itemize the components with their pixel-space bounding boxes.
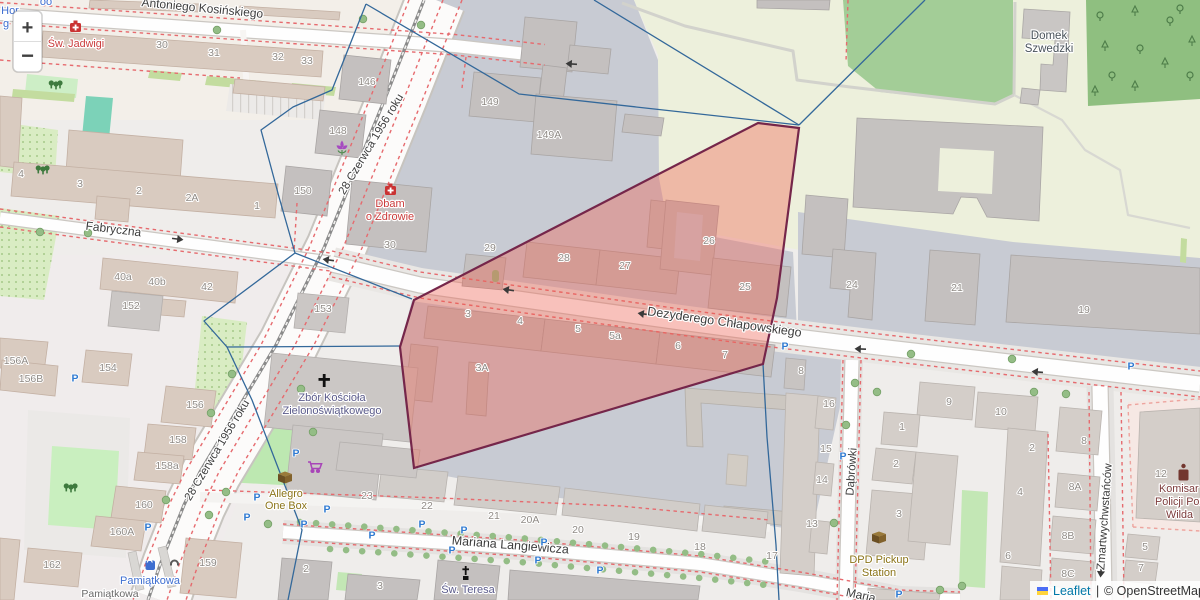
svg-text:P: P xyxy=(300,519,307,531)
svg-text:7: 7 xyxy=(722,349,728,361)
svg-text:P: P xyxy=(534,555,541,567)
svg-text:20: 20 xyxy=(572,524,584,536)
svg-text:Pamiątkowa: Pamiątkowa xyxy=(120,575,181,587)
svg-text:158: 158 xyxy=(169,434,187,446)
svg-text:16: 16 xyxy=(823,398,835,410)
svg-text:8A: 8A xyxy=(1069,481,1082,493)
svg-text:Zbór Kościoła: Zbór Kościoła xyxy=(298,392,366,404)
svg-text:19: 19 xyxy=(628,531,640,543)
svg-text:162: 162 xyxy=(43,559,61,571)
svg-text:20A: 20A xyxy=(521,514,540,526)
svg-text:2: 2 xyxy=(303,563,309,575)
svg-text:P: P xyxy=(895,589,902,600)
svg-text:Zielonoświątkowego: Zielonoświątkowego xyxy=(282,405,381,417)
svg-text:30: 30 xyxy=(156,39,168,51)
svg-text:30: 30 xyxy=(384,239,396,251)
svg-text:© OpenStreetMap: © OpenStreetMap xyxy=(1104,584,1200,598)
svg-text:2A: 2A xyxy=(186,192,199,204)
svg-text:Pamiątkowa: Pamiątkowa xyxy=(81,588,138,600)
svg-text:160A: 160A xyxy=(110,526,135,538)
svg-text:P: P xyxy=(253,492,260,504)
svg-text:2: 2 xyxy=(893,458,899,470)
svg-text:13: 13 xyxy=(806,518,818,530)
svg-text:4: 4 xyxy=(18,168,24,180)
svg-text:−: − xyxy=(21,43,34,68)
svg-text:Szwedzki: Szwedzki xyxy=(1025,43,1074,55)
svg-text:156A: 156A xyxy=(4,355,29,367)
svg-text:10: 10 xyxy=(995,406,1007,418)
svg-text:1: 1 xyxy=(899,421,905,433)
svg-text:4: 4 xyxy=(517,315,523,327)
svg-text:29: 29 xyxy=(484,242,496,254)
svg-text:33: 33 xyxy=(301,55,313,67)
svg-text:154: 154 xyxy=(99,362,117,374)
svg-text:19: 19 xyxy=(1078,304,1090,316)
svg-text:27: 27 xyxy=(619,260,631,272)
svg-text:3A: 3A xyxy=(476,362,489,374)
svg-text:1: 1 xyxy=(254,200,260,212)
svg-text:P: P xyxy=(323,504,330,516)
svg-text:146: 146 xyxy=(358,76,376,88)
svg-text:150: 150 xyxy=(294,185,312,197)
svg-text:8: 8 xyxy=(1081,435,1087,447)
svg-text:5: 5 xyxy=(575,323,581,335)
svg-text:3: 3 xyxy=(896,508,902,520)
svg-text:P: P xyxy=(71,373,78,385)
svg-text:32: 32 xyxy=(272,51,284,63)
svg-text:3: 3 xyxy=(465,308,471,320)
svg-text:P: P xyxy=(460,525,467,537)
svg-text:P: P xyxy=(540,537,547,549)
svg-text:22: 22 xyxy=(421,500,433,512)
svg-text:Św. Jadwigi: Św. Jadwigi xyxy=(48,37,104,50)
svg-text:40b: 40b xyxy=(148,276,166,288)
svg-text:P: P xyxy=(596,565,603,577)
svg-text:P: P xyxy=(448,545,455,557)
svg-text:Domek: Domek xyxy=(1031,30,1068,42)
svg-text:P: P xyxy=(839,451,846,463)
svg-text:o Zdrowie: o Zdrowie xyxy=(366,211,414,223)
svg-text:40a: 40a xyxy=(114,271,132,283)
svg-text:5: 5 xyxy=(1142,541,1148,553)
svg-text:25: 25 xyxy=(739,281,751,293)
svg-text:Leaflet: Leaflet xyxy=(1053,584,1091,598)
svg-text:24: 24 xyxy=(846,279,858,291)
svg-text:Allegro: Allegro xyxy=(269,488,303,500)
svg-text:156B: 156B xyxy=(19,373,44,385)
svg-text:7: 7 xyxy=(1138,562,1144,574)
svg-text:156: 156 xyxy=(186,399,204,411)
svg-text:Św. Teresa: Św. Teresa xyxy=(441,583,495,596)
svg-text:P: P xyxy=(144,522,151,534)
svg-text:159: 159 xyxy=(199,557,217,569)
svg-text:2: 2 xyxy=(136,185,142,197)
svg-text:P: P xyxy=(368,530,375,542)
svg-text:31: 31 xyxy=(208,47,220,59)
svg-text:28: 28 xyxy=(558,252,570,264)
svg-text:149A: 149A xyxy=(537,129,562,141)
svg-text:6: 6 xyxy=(1005,550,1011,562)
svg-text:42: 42 xyxy=(201,281,213,293)
svg-text:P: P xyxy=(781,341,788,353)
svg-text:One Box: One Box xyxy=(265,500,308,512)
svg-text:160: 160 xyxy=(135,499,153,511)
svg-text:oo: oo xyxy=(40,0,52,8)
svg-text:2: 2 xyxy=(1029,442,1035,454)
svg-text:g: g xyxy=(3,18,9,30)
svg-text:23: 23 xyxy=(361,490,373,502)
svg-text:3: 3 xyxy=(377,580,383,592)
svg-text:9: 9 xyxy=(946,396,952,408)
svg-text:+: + xyxy=(22,17,34,39)
svg-text:Station: Station xyxy=(862,567,896,579)
svg-text:P: P xyxy=(292,448,299,460)
svg-text:5a: 5a xyxy=(609,330,621,342)
svg-text:Dbam: Dbam xyxy=(375,198,404,210)
svg-text:Wilda: Wilda xyxy=(1166,509,1193,521)
svg-text:4: 4 xyxy=(1017,486,1023,498)
svg-text:8: 8 xyxy=(798,365,804,377)
svg-text:148: 148 xyxy=(329,125,347,137)
svg-text:18: 18 xyxy=(694,541,706,553)
svg-text:26: 26 xyxy=(703,235,715,247)
svg-text:P: P xyxy=(418,519,425,531)
svg-text:3: 3 xyxy=(77,178,83,190)
svg-text:12: 12 xyxy=(1155,468,1167,480)
svg-text:P: P xyxy=(243,512,250,524)
svg-text:14: 14 xyxy=(816,474,828,486)
svg-text:6: 6 xyxy=(675,340,681,352)
svg-text:DPD Pickup: DPD Pickup xyxy=(849,554,908,566)
svg-text:152: 152 xyxy=(122,300,140,312)
svg-text:158a: 158a xyxy=(155,460,179,472)
svg-text:Policji Poz: Policji Poz xyxy=(1155,496,1200,508)
svg-text:17: 17 xyxy=(766,550,778,562)
svg-text:21: 21 xyxy=(951,282,963,294)
svg-text:21: 21 xyxy=(488,510,500,522)
svg-text:8B: 8B xyxy=(1062,530,1075,542)
svg-text:Komisar: Komisar xyxy=(1159,483,1199,495)
svg-text:153: 153 xyxy=(314,303,332,315)
svg-text:149: 149 xyxy=(481,96,499,108)
svg-text:P: P xyxy=(1127,361,1134,373)
svg-text:8C: 8C xyxy=(1061,568,1075,580)
svg-text:|: | xyxy=(1096,584,1099,598)
svg-text:15: 15 xyxy=(820,443,832,455)
